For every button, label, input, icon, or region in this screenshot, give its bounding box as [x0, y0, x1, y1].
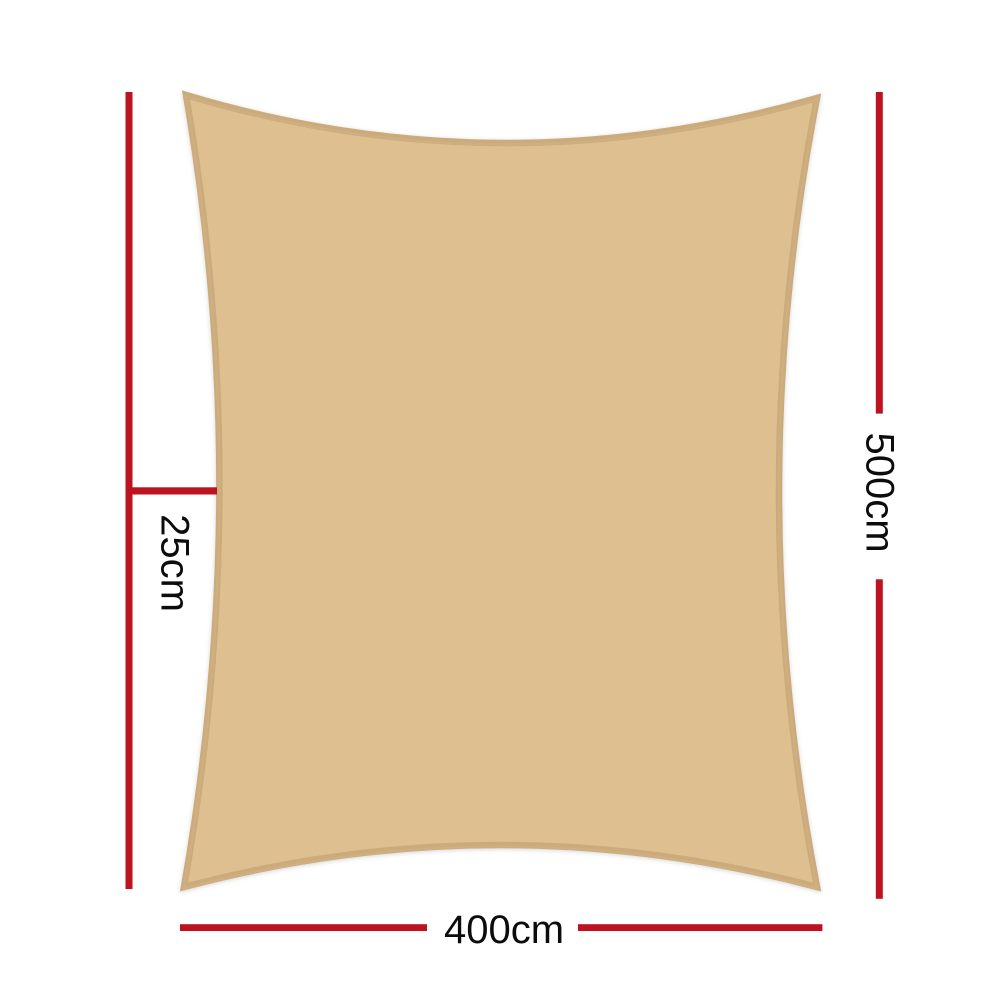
svg-text:500cm: 500cm — [858, 432, 902, 552]
svg-text:400cm: 400cm — [444, 908, 564, 952]
svg-text:25cm: 25cm — [153, 514, 197, 612]
